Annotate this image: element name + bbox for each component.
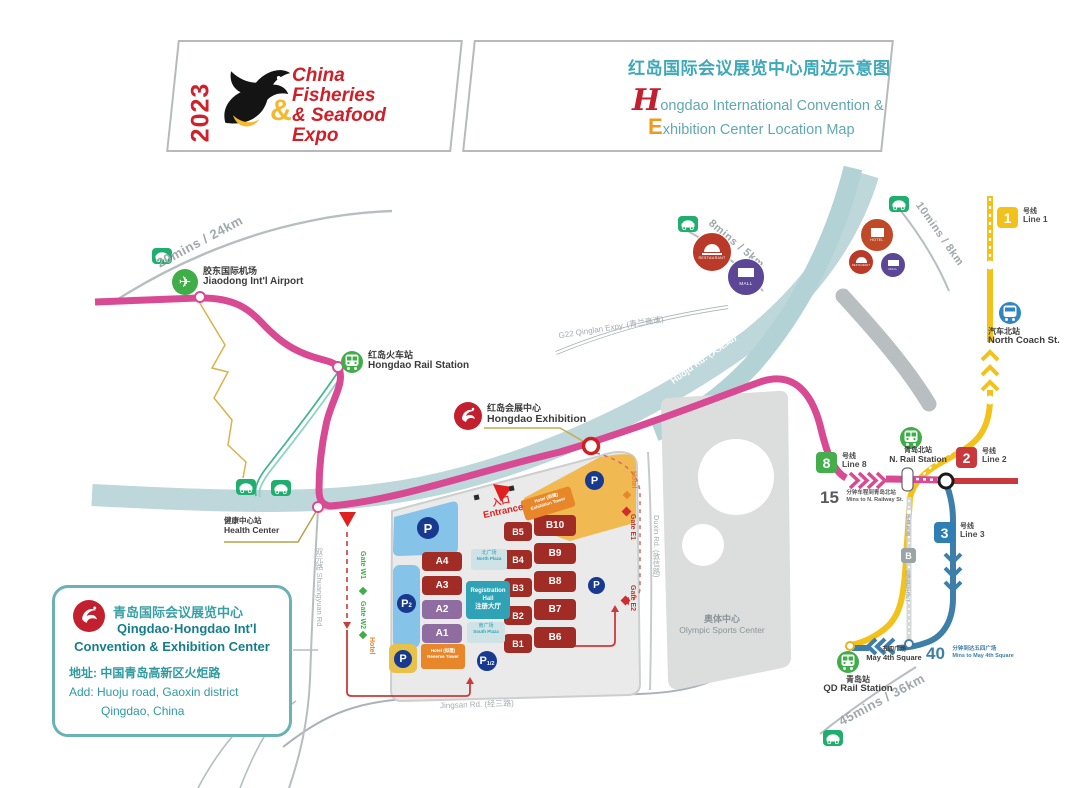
hall-b4: B4 — [504, 550, 532, 569]
taxi-icon — [271, 480, 291, 496]
line8-label: 号线Line 8 — [842, 453, 867, 469]
info-title-en2: Convention & Exhibition Center — [69, 639, 275, 654]
hongdao-rail-icon — [341, 351, 363, 373]
mins15-note: 15 分钟车程到青岛北站 Mins to N. Railway St. — [820, 488, 903, 508]
airport-label: 胶东国际机场 Jiaodong Int'l Airport — [203, 266, 303, 288]
hotel-east-label: Hotel — [630, 471, 637, 489]
hotel-reserve-tower: Hotel (拟建) Reserve Tower — [421, 644, 465, 669]
health-center-label: 健康中心站 Health Center — [224, 517, 279, 535]
south-plaza: 南广场 South Plaza — [467, 622, 505, 643]
location-map: ✈ 2023 & China Fisheries & Seafood Expo … — [0, 0, 1080, 788]
line1-badge: 1 — [997, 207, 1018, 228]
map-title-zh: 红岛国际会议展览中心周边示意图 — [628, 54, 891, 79]
gate-e1-label: Gate E1 — [629, 514, 636, 540]
hongdao-exhibition-logo — [454, 402, 482, 430]
info-addr-en1: Add: Huoju road, Gaoxin district — [69, 685, 238, 699]
gate-w2-label: Gate W2 — [359, 601, 366, 629]
shuangyuan-label: 双元路 Shuangyuan Rd — [314, 548, 325, 626]
hotel-west-label: Hotel — [368, 637, 375, 655]
map-title-en-line1: Hongdao International Convention & — [632, 83, 884, 118]
hall-b1: B1 — [504, 634, 532, 653]
north-coach-label: 汽车北站 North Coach St. — [988, 327, 1060, 347]
parking-icon: P — [417, 517, 439, 539]
parking-p2-icon: P2 — [397, 594, 416, 613]
line3-badge: 3 — [934, 522, 955, 543]
info-title-en1: Qingdao·Hongdao Int'l — [117, 621, 257, 636]
hall-a3: A3 — [422, 576, 462, 595]
hall-b5: B5 — [504, 522, 532, 541]
bus-b-badge: B — [901, 548, 916, 563]
restaurant-icon: RESTAURANT — [848, 249, 874, 275]
gate-w1-label: Gate W1 — [359, 551, 366, 579]
hall-a2: A2 — [422, 600, 462, 619]
line1-label: 号线Line 1 — [1023, 208, 1048, 224]
qd-rail-label: 青岛站 QD Rail Station — [808, 675, 908, 695]
gate-e2-label: Gate E2 — [629, 585, 636, 611]
airport-icon: ✈ — [172, 269, 198, 295]
exhibition-node — [584, 439, 599, 454]
duxin-label: Duxin Rd. (敦信路) — [651, 515, 662, 578]
brand-amp: & — [270, 94, 292, 128]
taxi-icon — [889, 196, 909, 212]
line2-label: 号线Line 2 — [982, 448, 1007, 464]
info-title-zh: 青岛国际会议展览中心 — [113, 602, 243, 621]
map-title-en-line2: Exhibition Center Location Map — [648, 114, 855, 140]
parking-icon: P — [585, 471, 604, 490]
hongdao-rail-label: 红岛火车站 Hongdao Rail Station — [368, 350, 469, 372]
brand-wordmark: China Fisheries & Seafood Expo — [292, 66, 386, 146]
parking-icon: P — [588, 577, 605, 594]
info-box: 青岛国际会议展览中心 Qingdao·Hongdao Int'l Convent… — [52, 585, 292, 737]
taxi-icon — [678, 216, 698, 232]
bus-line-label-bottom: (隧道巴士站) — [903, 570, 911, 601]
mall-icon: MALL — [880, 252, 906, 278]
banner-title: 红岛国际会议展览中心周边示意图 Hongdao International Co… — [462, 40, 894, 152]
info-addr-en2: Qingdao, China — [101, 704, 184, 718]
mall-icon: MALL — [727, 258, 765, 296]
hall-b7: B7 — [534, 599, 576, 620]
svg-text:✈: ✈ — [179, 274, 192, 291]
line8-badge: 8 — [816, 452, 837, 473]
line3-label: 号线Line 3 — [960, 523, 985, 539]
parking-p12-icon: P1/2 — [477, 651, 497, 671]
info-addr-zh: 地址: 中国青岛高新区火炬路 — [69, 664, 220, 681]
yellow-chevrons-up — [982, 352, 998, 390]
hongdao-exhibition-label: 红岛会展中心 Hongdao Exhibition — [487, 403, 586, 425]
n-rail-icon — [900, 427, 922, 449]
may4-label: 五四广场 May 4th Square — [864, 647, 924, 663]
hall-b6: B6 — [534, 627, 576, 648]
n-rail-label: 青岛北站 N. Rail Station — [868, 447, 968, 465]
n-rail-interchange-node — [939, 474, 953, 488]
hall-b8: B8 — [534, 571, 576, 592]
olympic-area — [661, 391, 791, 689]
taxi-icon — [236, 479, 256, 495]
mins40-note: 40 分钟到达五四广场 Mins to May 4th Square — [926, 644, 1014, 664]
hotel-icon: HOTEL — [860, 218, 894, 252]
line2-badge: 2 — [956, 447, 977, 468]
restaurant-icon: RESTAURANT — [692, 232, 732, 272]
qd-rail-icon — [837, 651, 859, 673]
parking-icon: P — [394, 650, 412, 668]
olympic-label: 奥体中心 Olympic Sports Center — [662, 612, 782, 635]
hall-a4: A4 — [422, 552, 462, 571]
banner-logo: 2023 & China Fisheries & Seafood Expo — [166, 40, 463, 152]
hall-b9: B9 — [534, 543, 576, 564]
bus-line-label-top: 环湾大道 — [903, 514, 911, 536]
taxi-icon — [823, 730, 843, 746]
hall-b10: B10 — [534, 515, 576, 536]
registration-hall: Registration Hall 注册大厅 — [466, 581, 510, 619]
north-plaza: 北广场 North Plaza — [471, 549, 507, 570]
pink-chevrons-right — [850, 473, 885, 488]
info-fish-logo — [73, 600, 105, 632]
hall-a1: A1 — [422, 624, 462, 643]
coach-bus-icon — [999, 302, 1021, 324]
